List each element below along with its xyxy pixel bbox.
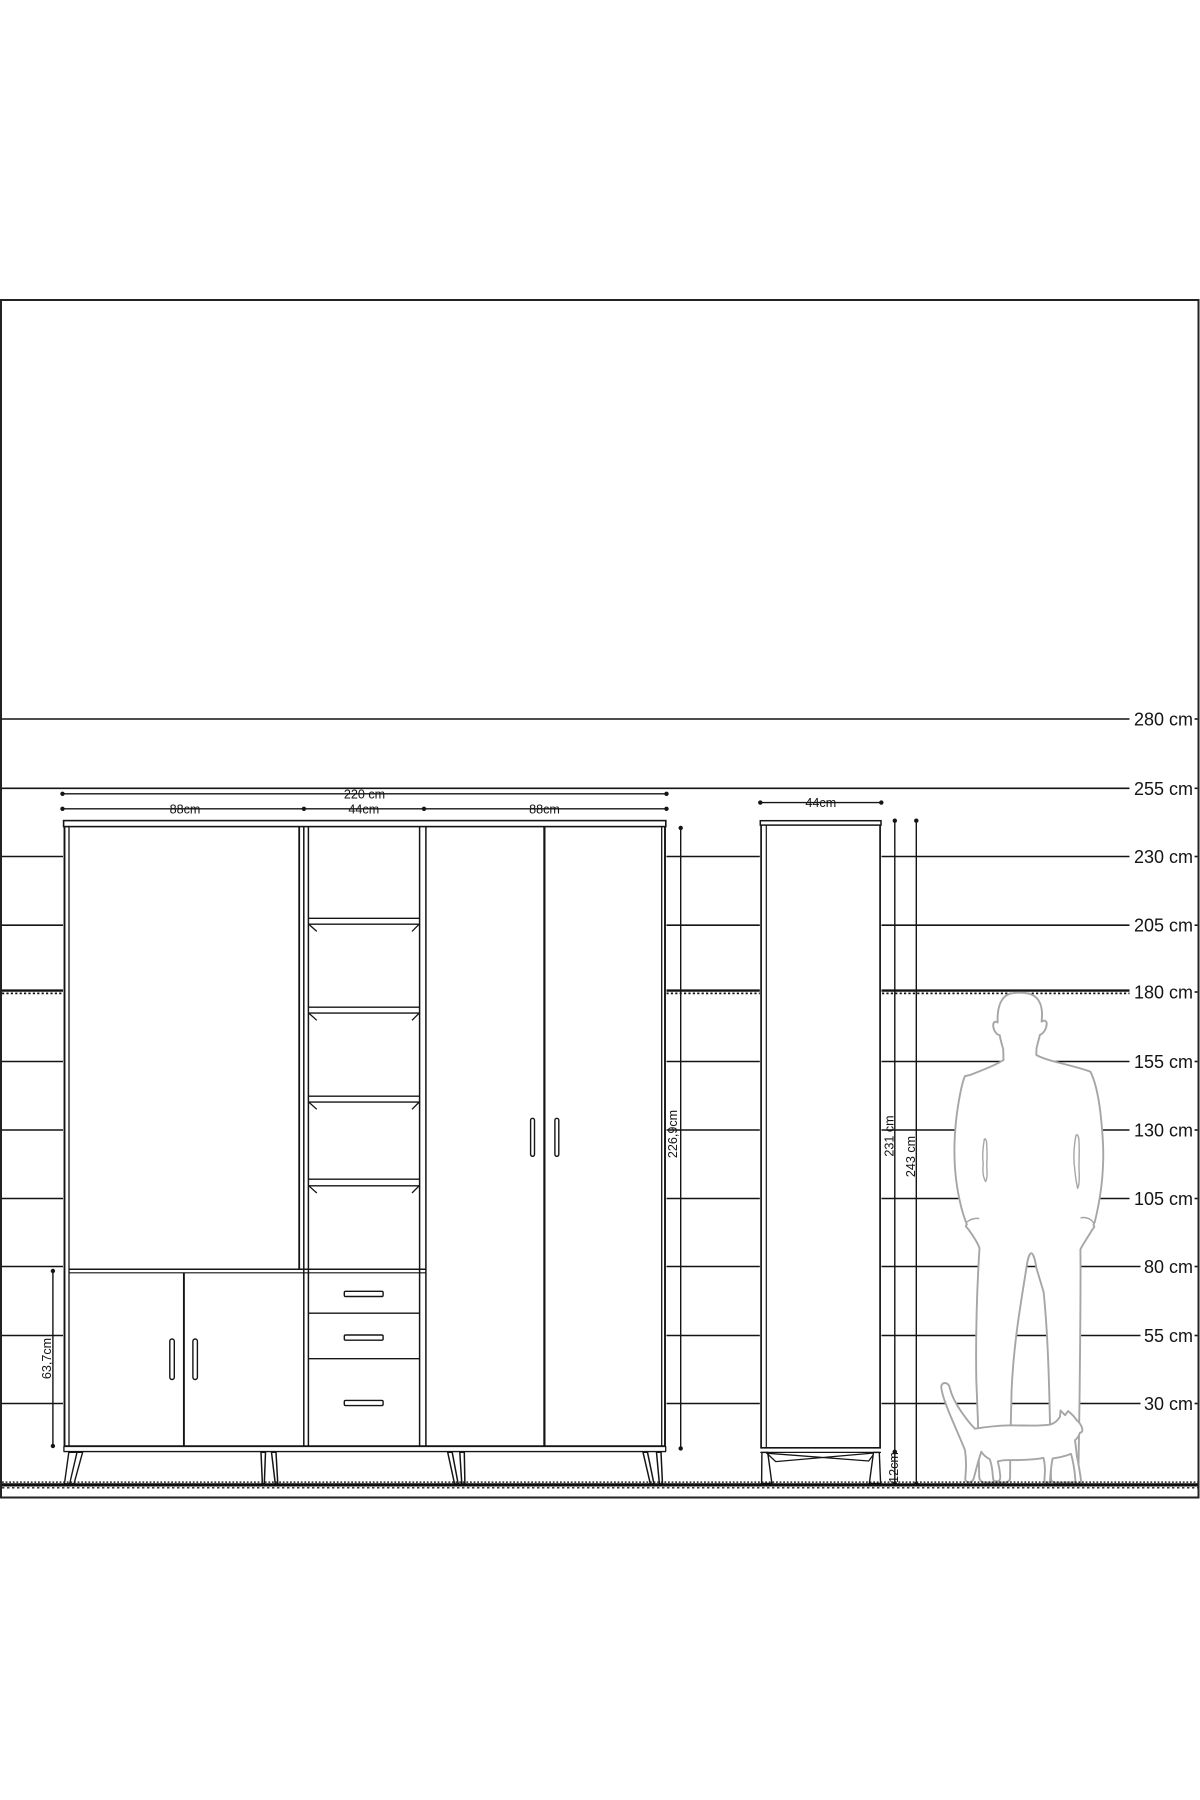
svg-text:80 cm: 80 cm bbox=[1144, 1257, 1193, 1277]
svg-text:30 cm: 30 cm bbox=[1144, 1394, 1193, 1414]
svg-text:44cm: 44cm bbox=[348, 802, 379, 816]
svg-text:231 cm: 231 cm bbox=[883, 1115, 897, 1156]
svg-text:44cm: 44cm bbox=[805, 796, 836, 810]
svg-text:63,7cm: 63,7cm bbox=[40, 1338, 54, 1379]
svg-text:180 cm: 180 cm bbox=[1134, 983, 1193, 1003]
svg-text:155 cm: 155 cm bbox=[1134, 1052, 1193, 1072]
svg-text:55 cm: 55 cm bbox=[1144, 1326, 1193, 1346]
svg-text:88cm: 88cm bbox=[170, 802, 201, 816]
svg-text:230 cm: 230 cm bbox=[1134, 847, 1193, 867]
svg-text:226,9cm: 226,9cm bbox=[666, 1110, 680, 1158]
svg-text:280 cm: 280 cm bbox=[1134, 710, 1193, 730]
svg-text:12cm: 12cm bbox=[887, 1452, 901, 1483]
svg-text:105 cm: 105 cm bbox=[1134, 1189, 1193, 1209]
svg-text:243 cm: 243 cm bbox=[904, 1136, 918, 1177]
svg-text:130 cm: 130 cm bbox=[1134, 1121, 1193, 1141]
svg-text:220 cm: 220 cm bbox=[344, 787, 385, 801]
svg-text:88cm: 88cm bbox=[529, 802, 560, 816]
svg-text:205 cm: 205 cm bbox=[1134, 916, 1193, 936]
svg-text:255 cm: 255 cm bbox=[1134, 779, 1193, 799]
